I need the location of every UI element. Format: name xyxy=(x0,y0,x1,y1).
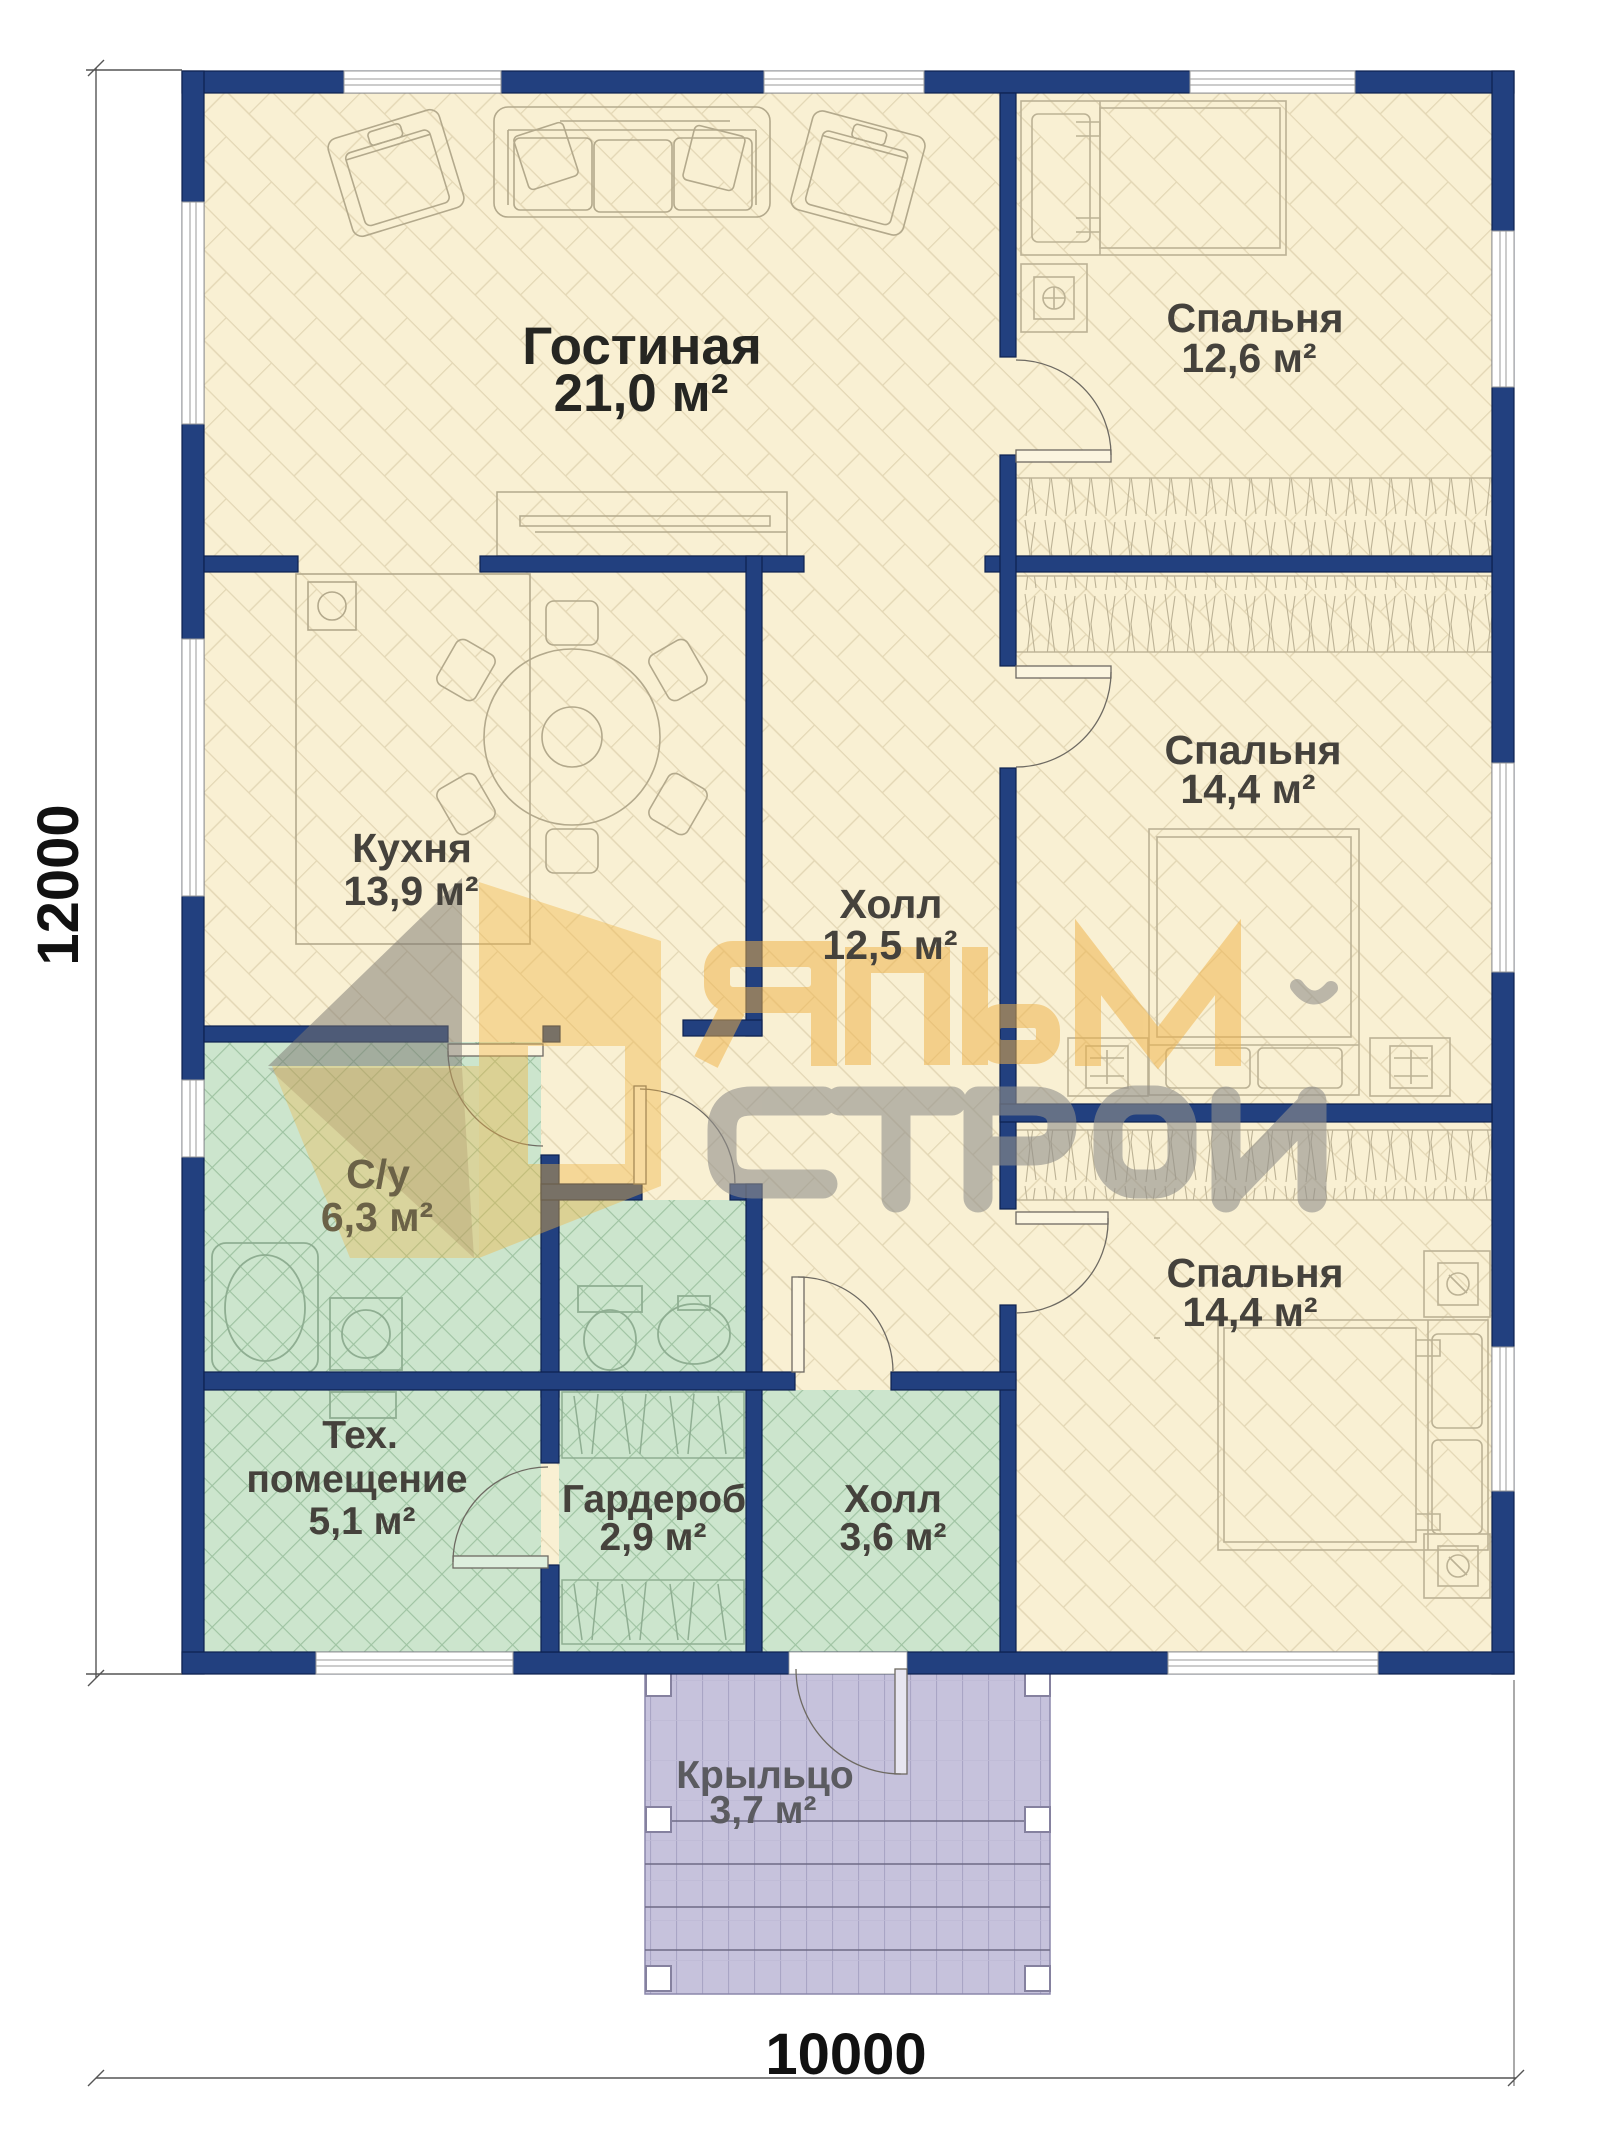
svg-text:Гардероб: Гардероб xyxy=(562,1478,746,1521)
svg-text:3,6 м²: 3,6 м² xyxy=(840,1516,947,1559)
svg-text:помещение: помещение xyxy=(246,1458,467,1501)
svg-text:12,5 м²: 12,5 м² xyxy=(822,922,957,968)
svg-text:С/у: С/у xyxy=(346,1151,410,1197)
svg-text:12000: 12000 xyxy=(26,804,91,965)
svg-text:Тех.: Тех. xyxy=(322,1414,398,1457)
svg-text:Холл: Холл xyxy=(844,1478,942,1521)
svg-text:14,4 м²: 14,4 м² xyxy=(1180,766,1315,812)
svg-text:Кухня: Кухня xyxy=(352,825,472,871)
svg-text:21,0 м²: 21,0 м² xyxy=(554,364,729,423)
svg-text:13,9 м²: 13,9 м² xyxy=(343,868,478,914)
svg-text:12,6 м²: 12,6 м² xyxy=(1181,335,1316,381)
svg-text:3,7 м²: 3,7 м² xyxy=(710,1789,817,1832)
svg-text:14,4 м²: 14,4 м² xyxy=(1182,1289,1317,1335)
svg-text:10000: 10000 xyxy=(765,2022,926,2087)
svg-text:2,9 м²: 2,9 м² xyxy=(600,1516,707,1559)
svg-text:6,3 м²: 6,3 м² xyxy=(321,1194,433,1240)
svg-text:5,1 м²: 5,1 м² xyxy=(309,1500,416,1543)
svg-text:Холл: Холл xyxy=(840,881,943,927)
